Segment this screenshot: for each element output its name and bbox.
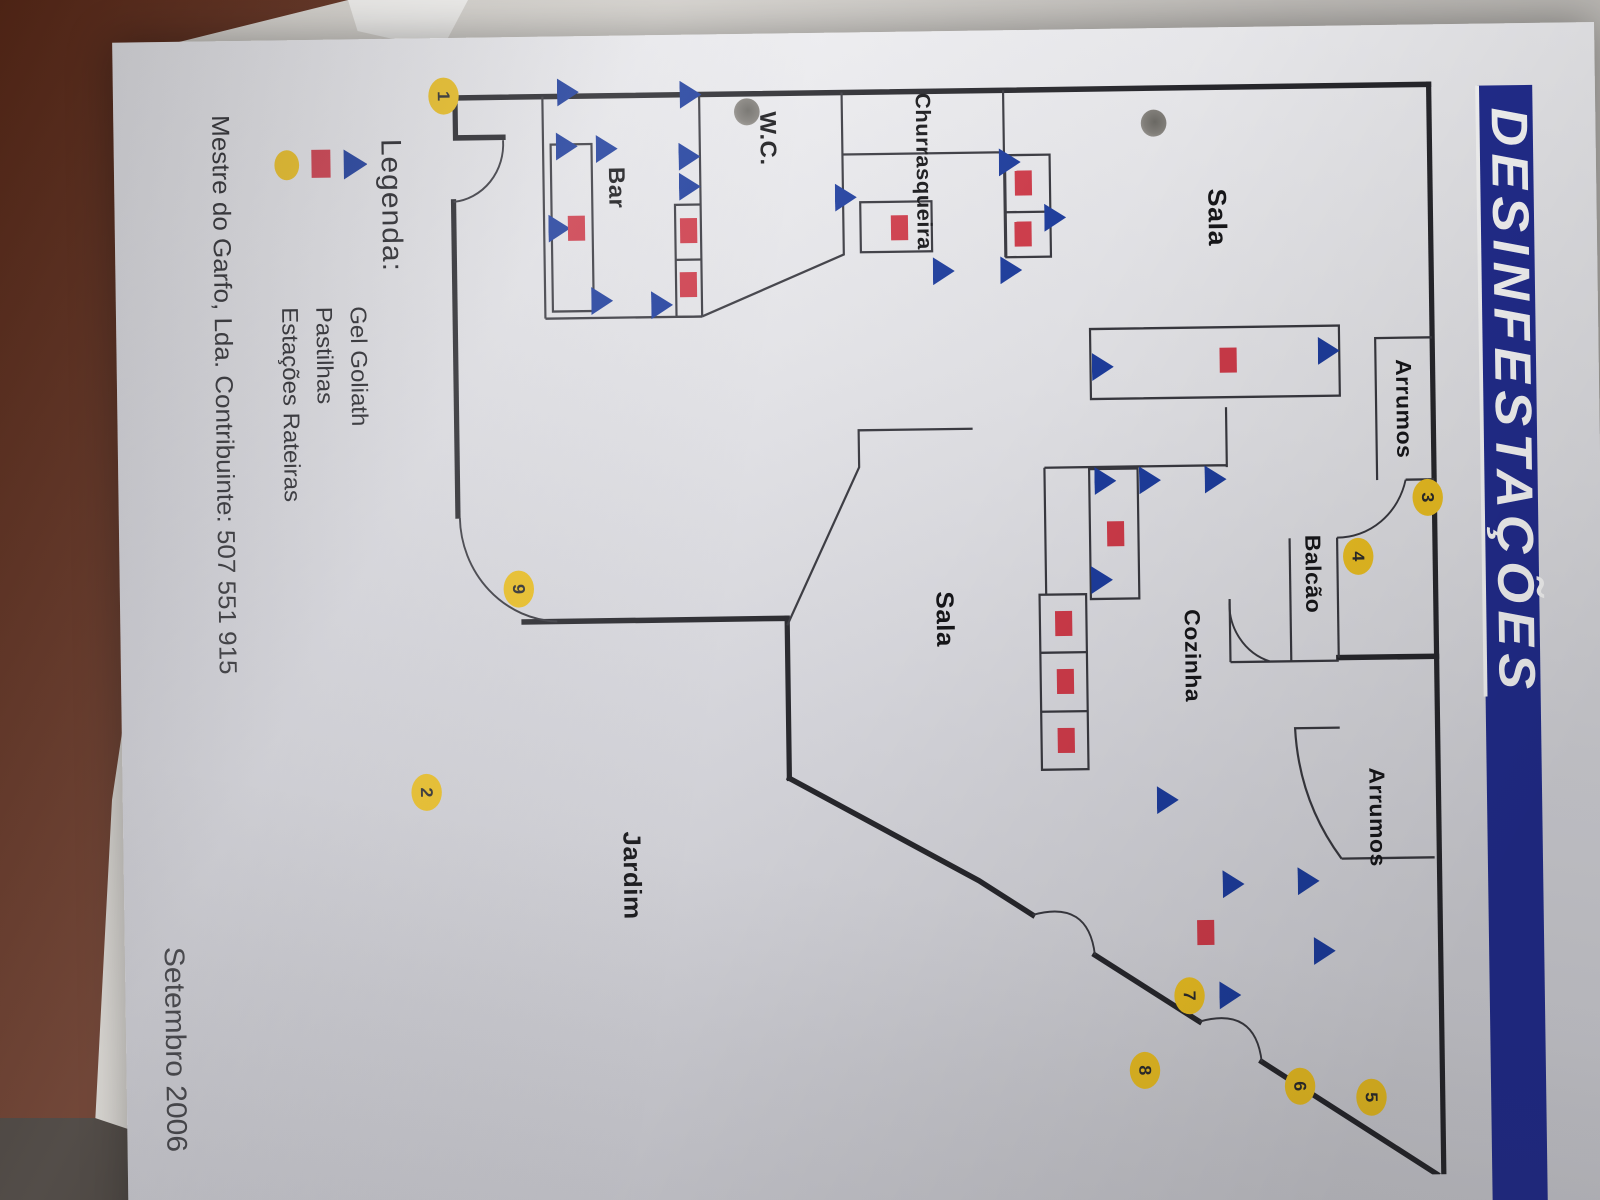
rat-station-3: 3 (1412, 479, 1443, 516)
photo-scene: DESINFESTAÇÕES (0, 0, 1600, 1200)
legend-item: Estações Rateiras (271, 140, 304, 274)
rat-station-1: 1 (428, 77, 459, 114)
room-label-balco: Balcão (1300, 535, 1327, 614)
footer-date: Setembro 2006 (157, 947, 192, 1153)
pastilha-square-icon (568, 216, 585, 241)
gel-goliath-triangle-icon (556, 132, 578, 160)
gel-goliath-triangle-icon (1044, 203, 1066, 231)
pastilha-square-icon (1057, 669, 1074, 694)
gel-goliath-triangle-icon (596, 135, 618, 163)
legend-item: Pastilhas (305, 140, 338, 274)
pastilha-square-icon (680, 272, 697, 297)
gel-goliath-triangle-icon (1314, 937, 1336, 965)
room-label-arrumos: Arrumos (1364, 767, 1391, 867)
gel-goliath-triangle-icon (1204, 465, 1226, 493)
gel-goliath-triangle-icon (557, 78, 579, 106)
triangle-icon (344, 149, 368, 179)
room-label-churrasqueira: Churrasqueira (910, 93, 937, 250)
gel-goliath-triangle-icon (591, 287, 613, 315)
pastilha-square-icon (1197, 920, 1214, 945)
gel-goliath-triangle-icon (1092, 353, 1114, 381)
rat-station-2: 2 (411, 774, 442, 811)
gel-goliath-triangle-icon (1094, 467, 1116, 495)
legend: Legenda: Gel GoliathPastilhasEstações Ra… (271, 139, 408, 274)
gel-goliath-triangle-icon (1157, 786, 1179, 814)
rat-station-7: 7 (1174, 977, 1205, 1014)
gel-goliath-triangle-icon (1219, 981, 1241, 1009)
gel-goliath-triangle-icon (651, 291, 673, 319)
square-icon (312, 150, 331, 178)
punch-hole (1141, 109, 1167, 136)
gel-goliath-triangle-icon (835, 183, 857, 211)
gel-goliath-triangle-icon (1318, 337, 1340, 365)
gel-goliath-triangle-icon (678, 142, 700, 170)
paper-sheet: DESINFESTAÇÕES (112, 22, 1600, 1200)
gel-goliath-triangle-icon (1222, 870, 1244, 898)
pastilha-square-icon (1058, 728, 1075, 753)
room-label-wc: W.C. (753, 111, 780, 165)
pastilha-square-icon (680, 218, 697, 243)
pastilha-square-icon (1015, 170, 1032, 195)
circle-icon (275, 150, 300, 180)
rat-station-5: 5 (1356, 1079, 1387, 1116)
legend-item-label: Gel Goliath (344, 306, 372, 426)
legend-heading: Legenda: (374, 139, 408, 273)
room-label-sala: Sala (1202, 188, 1232, 246)
rat-station-4: 4 (1343, 538, 1374, 575)
legend-rows: Gel GoliathPastilhasEstações Rateiras (271, 139, 373, 274)
gel-goliath-triangle-icon (1000, 256, 1022, 284)
pastilha-square-icon (891, 215, 908, 240)
room-label-sala: Sala (930, 591, 960, 647)
room-label-jardim: Jardim (617, 831, 648, 920)
gel-goliath-triangle-icon (933, 257, 955, 285)
pastilha-square-icon (1055, 611, 1072, 636)
legend-item: Gel Goliath (340, 139, 373, 273)
room-label-bar: Bar (602, 167, 629, 209)
gel-goliath-triangle-icon (1091, 566, 1113, 594)
gel-goliath-triangle-icon (1139, 466, 1161, 494)
rat-station-9: 9 (503, 570, 534, 607)
pastilha-square-icon (1219, 348, 1236, 373)
legend-item-label: Estações Rateiras (276, 307, 305, 502)
pastilha-square-icon (1014, 221, 1031, 246)
room-label-arrumos: Arrumos (1390, 359, 1417, 459)
pastilha-square-icon (1107, 521, 1124, 546)
gel-goliath-triangle-icon (679, 80, 701, 108)
rat-station-8: 8 (1130, 1052, 1161, 1089)
rat-station-6: 6 (1285, 1067, 1316, 1104)
gel-goliath-triangle-icon (679, 172, 701, 200)
room-label-cozinha: Cozinha (1179, 609, 1206, 702)
gel-goliath-triangle-icon (1297, 867, 1319, 895)
legend-item-label: Pastilhas (310, 307, 338, 405)
